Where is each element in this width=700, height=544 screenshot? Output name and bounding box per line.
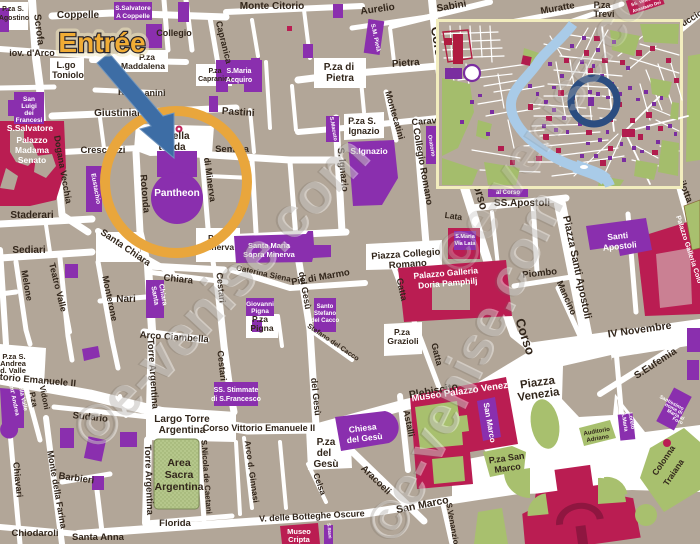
svg-text:Entrée: Entrée bbox=[58, 27, 145, 58]
svg-text:Staderari: Staderari bbox=[10, 210, 54, 221]
svg-text:Madama: Madama bbox=[15, 145, 49, 155]
svg-text:P.za S.: P.za S. bbox=[348, 116, 376, 126]
svg-text:Palazzo: Palazzo bbox=[16, 135, 47, 145]
svg-text:S.Salvatore: S.Salvatore bbox=[7, 123, 54, 133]
svg-text:Cripta: Cripta bbox=[288, 535, 310, 544]
svg-text:S.Salvatore: S.Salvatore bbox=[115, 5, 151, 12]
svg-text:P.za: P.za bbox=[208, 68, 221, 75]
svg-text:S.Maria: S.Maria bbox=[227, 68, 252, 75]
svg-text:iov. d'Arco: iov. d'Arco bbox=[9, 48, 55, 58]
svg-text:Monte Citorio: Monte Citorio bbox=[240, 1, 304, 12]
svg-text:Santo: Santo bbox=[317, 304, 334, 310]
svg-text:Pastini: Pastini bbox=[221, 106, 255, 119]
svg-text:P.za: P.za bbox=[317, 437, 336, 448]
svg-text:Pietra: Pietra bbox=[326, 73, 354, 84]
svg-text:Area: Area bbox=[167, 457, 191, 469]
svg-text:San: San bbox=[23, 96, 35, 103]
svg-text:Coppelle: Coppelle bbox=[57, 10, 100, 21]
svg-text:Nari: Nari bbox=[116, 294, 136, 305]
svg-text:Senato: Senato bbox=[18, 155, 46, 165]
svg-text:del: del bbox=[317, 448, 332, 459]
svg-text:Maddalena: Maddalena bbox=[121, 61, 165, 71]
svg-text:P.za di: P.za di bbox=[324, 62, 355, 73]
svg-text:Florida: Florida bbox=[159, 518, 191, 529]
svg-text:Largo Torre: Largo Torre bbox=[154, 414, 210, 425]
svg-text:Collegio: Collegio bbox=[156, 28, 192, 38]
svg-text:L.go: L.go bbox=[57, 60, 76, 70]
svg-text:Agostino: Agostino bbox=[0, 15, 29, 22]
svg-text:Sediari: Sediari bbox=[12, 245, 46, 256]
svg-text:di S.Francesco: di S.Francesco bbox=[211, 396, 261, 403]
svg-text:Argentina: Argentina bbox=[159, 425, 206, 436]
svg-text:Acquiro: Acquiro bbox=[226, 77, 252, 84]
svg-text:Luigi: Luigi bbox=[21, 103, 37, 110]
svg-text:Ignazio: Ignazio bbox=[349, 126, 381, 136]
svg-text:Pigna: Pigna bbox=[250, 323, 273, 333]
svg-text:P.za S.: P.za S. bbox=[2, 6, 24, 13]
svg-text:Pietra: Pietra bbox=[392, 57, 421, 70]
svg-text:dei: dei bbox=[24, 110, 34, 117]
svg-text:del Cacco: del Cacco bbox=[311, 318, 340, 324]
svg-text:Stefano: Stefano bbox=[314, 311, 336, 317]
svg-text:Francesi: Francesi bbox=[16, 117, 43, 124]
svg-text:Chiodaroli: Chiodaroli bbox=[12, 528, 59, 539]
svg-text:Pantheon: Pantheon bbox=[154, 188, 200, 199]
svg-text:SS. Stimmate: SS. Stimmate bbox=[214, 387, 259, 394]
svg-text:Argentina: Argentina bbox=[154, 481, 203, 493]
svg-text:Santa Anna: Santa Anna bbox=[72, 532, 125, 543]
svg-text:Sacra: Sacra bbox=[165, 469, 194, 481]
svg-text:Corso Vittorio Emanuele II: Corso Vittorio Emanuele II bbox=[203, 423, 315, 433]
svg-text:Grazioli: Grazioli bbox=[387, 336, 418, 346]
svg-text:Pigna: Pigna bbox=[251, 308, 269, 315]
svg-text:Toniolo: Toniolo bbox=[52, 70, 84, 80]
svg-text:A Coppelle: A Coppelle bbox=[116, 13, 150, 20]
svg-text:anini: anini bbox=[144, 88, 165, 98]
svg-text:Gesù: Gesù bbox=[313, 459, 338, 470]
